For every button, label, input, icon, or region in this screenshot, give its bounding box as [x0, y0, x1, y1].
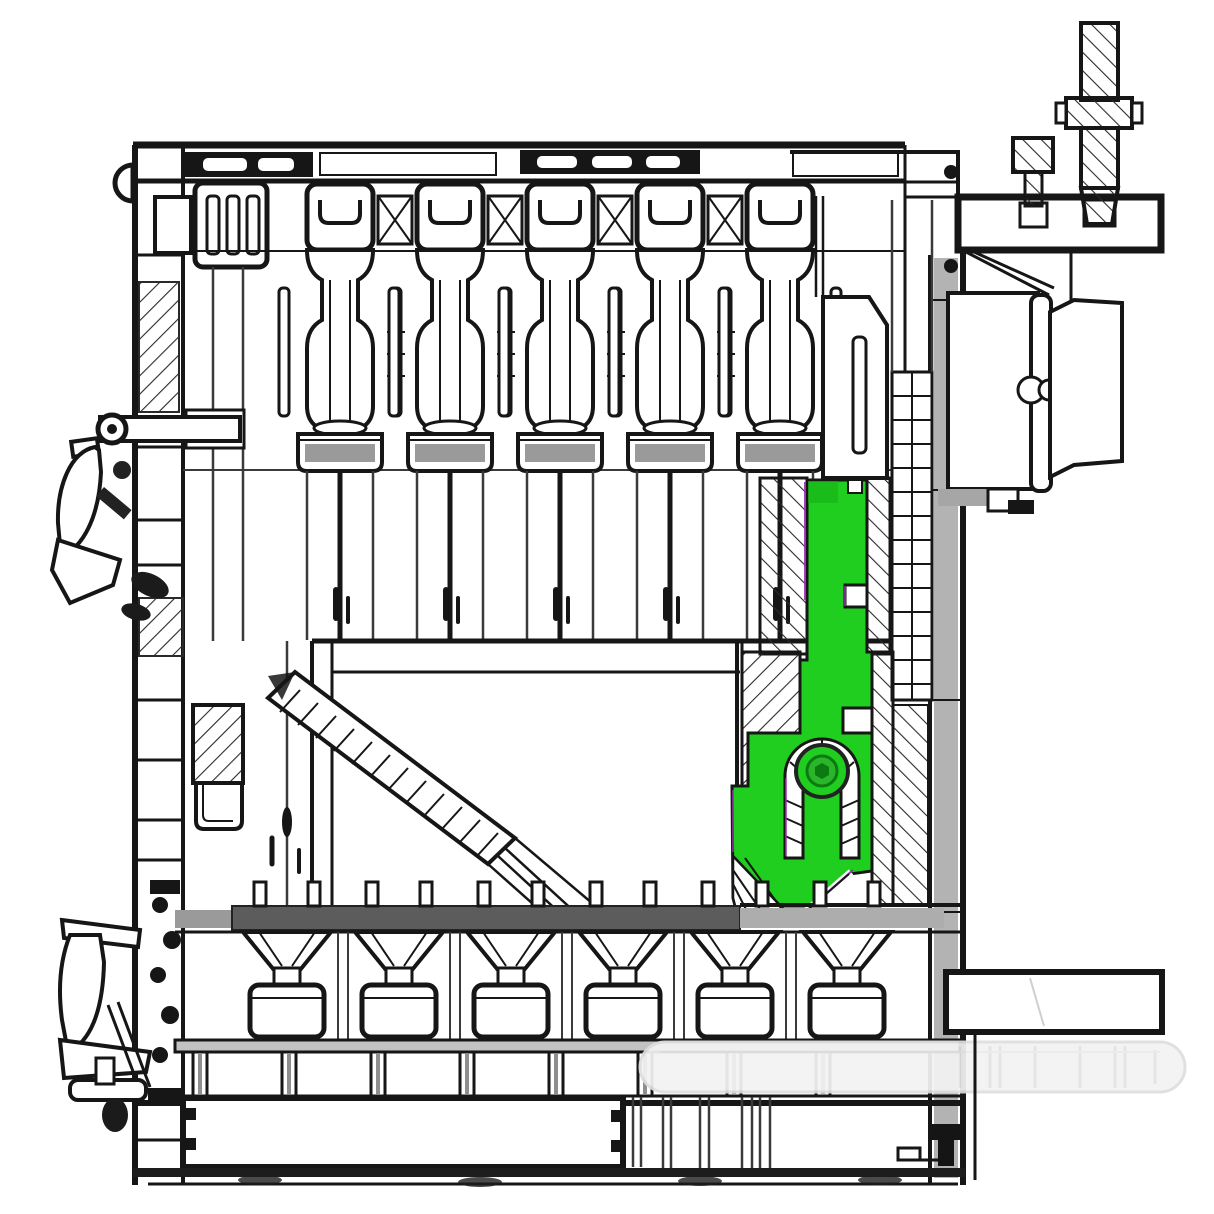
operating-handle-upper — [52, 438, 173, 623]
left-fill-door — [193, 705, 243, 829]
left-column-hatch-upper — [139, 282, 179, 412]
side-support-bar — [946, 972, 1162, 1032]
door-foot-ledge — [938, 489, 990, 506]
damper-rod-knob — [282, 807, 292, 837]
side-cleanout-door — [938, 293, 1122, 514]
faded-ghost-cylinder — [640, 1042, 1185, 1092]
left-column-hatch-mid — [139, 598, 183, 656]
left-edge-bump — [115, 165, 133, 201]
fire-grate-bar — [232, 906, 740, 930]
flue-ladder-column — [892, 200, 932, 700]
mounting-plate — [958, 197, 1161, 250]
wall-bolt-lower — [944, 259, 958, 273]
pivot-bolt — [796, 745, 848, 797]
boiler-cross-section — [0, 0, 1214, 1214]
pivot-pin-rod — [98, 410, 244, 448]
ash-chamber — [133, 1097, 965, 1187]
technical-drawing-canvas — [0, 0, 1214, 1214]
door-outer-box — [1050, 300, 1122, 477]
chamber-right-verticals — [633, 1097, 770, 1170]
wall-bolt-upper — [944, 165, 958, 179]
